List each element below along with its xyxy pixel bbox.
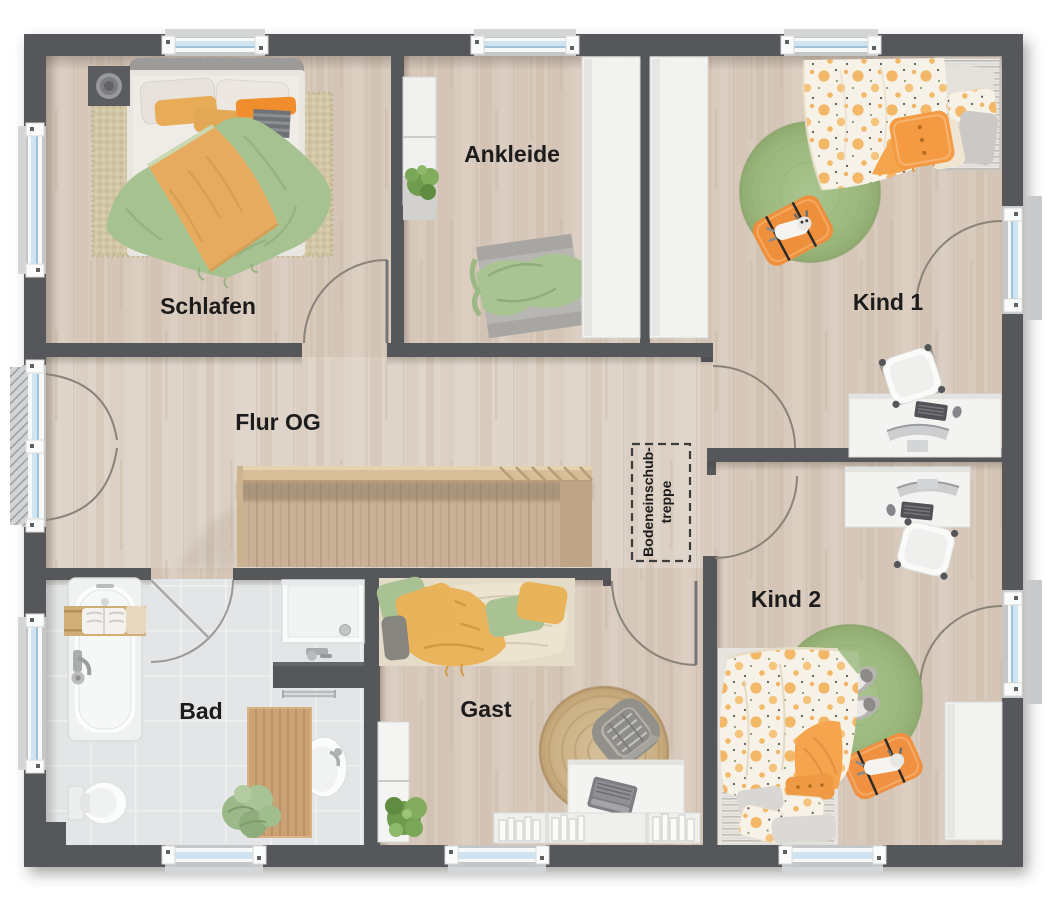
svg-text:Bodeneinschub-: Bodeneinschub-	[640, 447, 656, 557]
svg-text:treppe: treppe	[658, 480, 674, 523]
svg-text:Bad: Bad	[179, 698, 222, 724]
svg-text:Kind 1: Kind 1	[853, 289, 923, 315]
svg-text:Flur OG: Flur OG	[235, 409, 321, 435]
svg-text:Schlafen: Schlafen	[160, 293, 256, 319]
svg-text:Kind 2: Kind 2	[751, 586, 821, 612]
svg-text:Gast: Gast	[460, 696, 511, 722]
svg-text:Ankleide: Ankleide	[464, 141, 560, 167]
